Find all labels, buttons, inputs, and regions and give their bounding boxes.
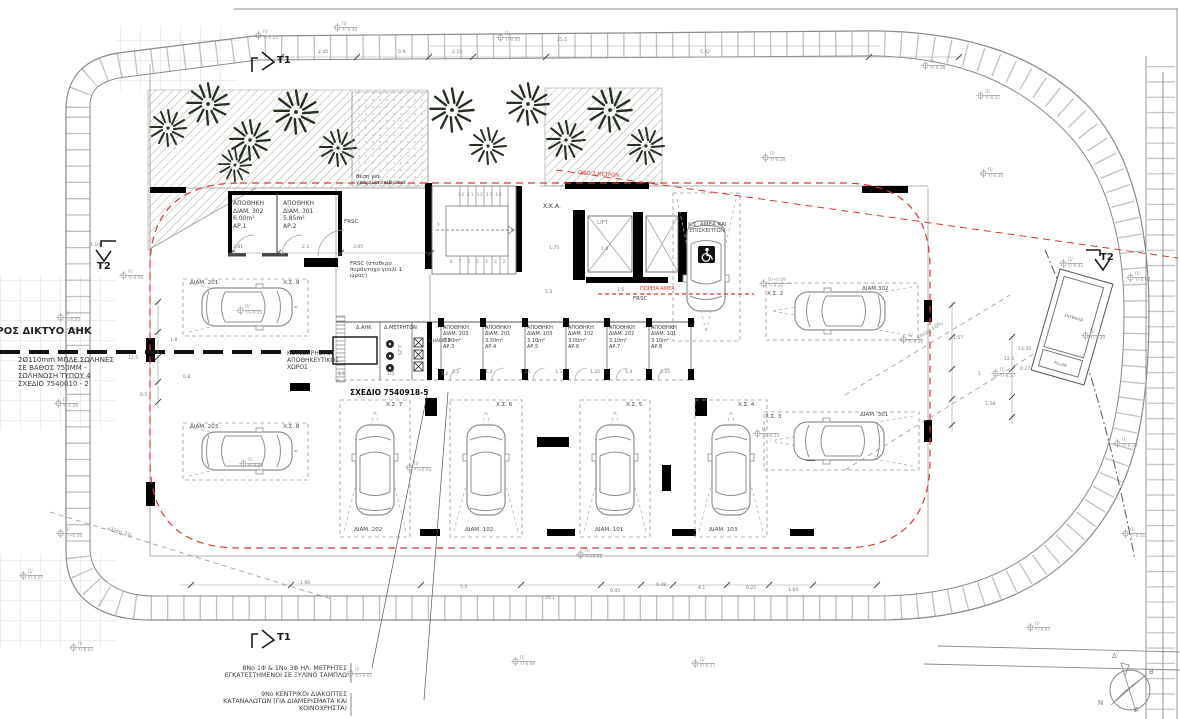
storage-unit-label: ΑΠΟΘΗΚΗ ΔΙΑΜ. 201 3.30m² ΑΡ.4 bbox=[485, 325, 525, 350]
survey-marker: Π/ Υ/-0.04 bbox=[128, 270, 143, 282]
note-line: ΧΩΡΟΣ bbox=[287, 364, 339, 371]
survey-marker: Π/ Υ/-0.63 bbox=[1135, 272, 1150, 284]
label-amea-bay: Χ.Σ. ΑΜΕΑ ΚΑΙ ΕΠΙΣΚΕΠΤΩΝ bbox=[676, 222, 738, 234]
frsc-label-1: FRSC bbox=[344, 219, 358, 226]
marker-level: Υ/-0.60 bbox=[520, 662, 535, 667]
survey-marker: Π/ Υ/-0.05 bbox=[65, 312, 80, 324]
marker-level: Υ/-0.51 bbox=[1130, 534, 1145, 539]
parking-label: ΔΙΑΜ. 203 bbox=[190, 424, 218, 430]
storage-number: ΑΡ.1 bbox=[233, 223, 279, 231]
marker-level: Υ/-0.17 bbox=[700, 664, 715, 669]
survey-marker: Π/ Υ/-0.42 bbox=[1068, 258, 1083, 270]
marker-level: Υ/-0.26 bbox=[908, 340, 923, 345]
dimension-label: 1.58 bbox=[985, 402, 995, 407]
compass-letter-west: Δ bbox=[1112, 652, 1117, 660]
dimension-label: 2.15 bbox=[452, 50, 462, 55]
compass-letter-east: Α bbox=[1134, 706, 1139, 714]
dimension-label: 3.05 bbox=[353, 245, 363, 250]
stair-number-mid: 9 bbox=[437, 223, 440, 228]
storage-area: 5.85m² bbox=[283, 215, 329, 223]
dimension-label: 0.45 bbox=[610, 589, 620, 594]
survey-marker: Π/ Υ/-0.67 bbox=[1035, 622, 1050, 634]
storage-number: ΑΡ.6 bbox=[568, 344, 608, 350]
parking-label: ΔΙΑΜ. 101 bbox=[595, 527, 623, 533]
dimension-label: 1.2 bbox=[441, 372, 448, 377]
marker-level: Υ/-0.07 bbox=[28, 576, 43, 581]
storage-number: ΑΡ.5 bbox=[527, 344, 567, 350]
marker-level: Υ/+0.05 bbox=[245, 311, 262, 316]
survey-marker: Π/ Υ/+0.02 bbox=[414, 462, 431, 474]
dimension-label: 0.27 bbox=[1020, 367, 1030, 372]
survey-marker: Π/ Υ/-0.41 bbox=[263, 30, 278, 42]
dimension-label: 1.64 bbox=[788, 588, 798, 593]
survey-marker: Π/ Υ/+0.00 bbox=[65, 528, 82, 540]
parking-label: ΔΙΑΜ.302 bbox=[862, 286, 889, 292]
parking-label: Χ.Σ. 3 bbox=[765, 414, 781, 420]
survey-marker: Π/ Υ/-0.44 bbox=[342, 22, 357, 34]
note-line: ΑΠΟΘΗΚΕΥΤΙΚΟΣ bbox=[287, 357, 339, 364]
label-room-dmetriton: Δ.ΜΕΤΡΗΤΩΝ bbox=[384, 325, 417, 331]
note-line: 8Νο 1Φ & 1Νο 3Φ ΗΛ. ΜΕΤΡΗΤΕΣ bbox=[200, 665, 347, 672]
survey-marker: Π/ Υ/-0.39 bbox=[1090, 330, 1105, 342]
survey-marker: Π/ Υ/-0.51 bbox=[1130, 528, 1145, 540]
note-line: ΚΟΙΝΟΧΡΗΣΤΑ) bbox=[200, 705, 347, 712]
survey-marker: Π/ Υ/-0.51 bbox=[985, 90, 1000, 102]
marker-level: Υ/-0.22 bbox=[768, 284, 792, 289]
dimension-label: 1 bbox=[978, 372, 981, 377]
marker-level: Υ/-0.51 bbox=[985, 96, 1000, 101]
survey-marker: Π/ Υ/-0.29 bbox=[1122, 438, 1137, 450]
label-room-dahk: Δ.ΑΗΚ bbox=[356, 325, 371, 331]
dimension-label: 1.2 bbox=[452, 370, 459, 375]
dimension-label: 2.1 bbox=[302, 245, 309, 250]
storage-number: ΑΡ.4 bbox=[485, 344, 525, 350]
parking-label: ΔΙΑΜ. 201 bbox=[190, 280, 218, 286]
dimension-label: 1.3 bbox=[485, 370, 492, 375]
dimension-label: 0.9 bbox=[398, 50, 405, 55]
storage-number: ΑΡ.7 bbox=[609, 344, 649, 350]
storage-unit-label: ΑΠΟΘΗΚΗ ΔΙΑΜ. 203 3.30m² ΑΡ.3 bbox=[443, 325, 483, 350]
parking-label: Χ.Σ. 2 bbox=[767, 291, 783, 297]
label-lift: LIFT bbox=[597, 220, 608, 227]
survey-marker: Π/ Υ/-0.27 bbox=[1000, 368, 1015, 380]
plan-linework bbox=[0, 0, 1180, 719]
dimension-label: 5.42 bbox=[700, 50, 710, 55]
dimension-label: 1.3 bbox=[625, 370, 632, 375]
marker-level: Υ/-0.28 bbox=[770, 158, 785, 163]
dimension-label: 12.5 bbox=[1004, 357, 1014, 362]
marker-level: Υ/-0.09 bbox=[248, 464, 263, 469]
dimension-label: 25.1 bbox=[545, 596, 555, 601]
note-frsc-glass: FRSC (σταθερό πυράντοχο γυαλί 1 ώρας) bbox=[350, 261, 410, 279]
label-xka: Χ.Κ.Α. bbox=[543, 203, 561, 210]
parking-label: ΔΙΑΜ. 301 bbox=[860, 412, 888, 418]
dimension-label: 1.5 bbox=[387, 372, 394, 377]
dimension-label: 1.25 bbox=[660, 370, 670, 375]
storage-unit-label: ΑΠΟΘΗΚΗ ΔΙΑΜ. 301 5.85m² ΑΡ.2 bbox=[283, 200, 329, 230]
storage-name: ΑΠΟΘΗΚΗ bbox=[233, 200, 279, 208]
survey-marker: Π/ Υ/-0.26 bbox=[988, 168, 1003, 180]
marker-level: Υ/+0.02 bbox=[414, 468, 431, 473]
survey-marker: Π/ Υ/+0.61 bbox=[355, 668, 372, 680]
compass-icon bbox=[1110, 663, 1150, 712]
dimension-label: 0.48 bbox=[656, 583, 666, 588]
section-label-t2-right: T2 bbox=[1100, 252, 1114, 263]
stair-numbers-lower: 8 7 6 5 4 3 2 bbox=[450, 260, 508, 265]
parking-label: ΔΙΑΜ. 103 bbox=[709, 527, 737, 533]
marker-level: Υ/-0.45 bbox=[505, 38, 520, 43]
storage-apartment: ΔΙΑΜ. 302 bbox=[233, 208, 279, 216]
note-line: ΣΧΕΔΙΟ 7540010 - 2 bbox=[18, 380, 114, 388]
marker-level: Υ/-0.44 bbox=[342, 28, 357, 33]
dimension-label: 5.5 bbox=[460, 585, 467, 590]
dimension-label: 1.5 bbox=[617, 288, 624, 293]
section-label-t1-bottom: T1 bbox=[277, 632, 291, 643]
columns bbox=[146, 186, 932, 536]
parking-label: Χ.Σ. 4 bbox=[738, 402, 754, 408]
note-main-switches: 9Νο ΚΕΝΤΡΙΚΟΙ ΔΙΑΚΟΠΤΕΣ ΚΑΤΑΝΑΛΩΤΩΝ (ΓΙΑ… bbox=[200, 691, 347, 712]
survey-marker: Π/ Υ/+0.09 bbox=[585, 549, 602, 561]
survey-marker: Π/ Υ/-0.04 bbox=[63, 398, 78, 410]
wheelchair-icon bbox=[698, 246, 715, 263]
marker-level: Υ/-0.67 bbox=[1035, 628, 1050, 633]
survey-marker: Π/ Υ/-0.07 bbox=[28, 570, 43, 582]
survey-marker: Π/ Υ/-0.09 bbox=[248, 458, 263, 470]
parking-label: Χ.Σ. 6 bbox=[496, 402, 512, 408]
compass-letter-north: Β bbox=[1149, 668, 1154, 676]
dimension-label: 2.81 bbox=[233, 245, 243, 250]
note-electric-meters: 8Νο 1Φ & 1Νο 3Φ ΗΛ. ΜΕΤΡΗΤΕΣ ΕΓΚΑΤΕΣΤΗΜΕ… bbox=[200, 665, 347, 679]
note-mailboxes: θέση για γραμματοκιβώτια bbox=[356, 174, 406, 186]
parking-label: ΔΙΑΜ. 102 bbox=[465, 527, 493, 533]
dimension-label: 1.1 bbox=[338, 372, 345, 377]
survey-marker: Π/ Υ/-0.28 bbox=[770, 152, 785, 164]
survey-marker: Π/ Υ/-0.38 bbox=[930, 60, 945, 72]
note-ahk-network: ΠΡΟΣ ΔΙΚΤΥΟ ΑΗΚ bbox=[0, 326, 92, 338]
note-line: ΣΩΛΗΝΩΣΗ ΤΥΠΟΥ 4 bbox=[18, 372, 114, 380]
storage-unit-label: ΑΠΟΘΗΚΗ ΔΙΑΜ. 103 3.10m² ΑΡ.5 bbox=[527, 325, 567, 350]
parking-label: Χ.Σ. 7 bbox=[386, 402, 402, 408]
dimension-label: 9.1 bbox=[698, 586, 705, 591]
storage-number: ΑΡ.3 bbox=[443, 344, 483, 350]
storage-number: ΑΡ.2 bbox=[283, 223, 329, 231]
marker-level: Υ/+0.13 bbox=[762, 434, 779, 439]
dimension-label: 2.45 bbox=[318, 50, 328, 55]
marker-level: Υ/-0.39 bbox=[1090, 336, 1105, 341]
marker-level: Υ/-0.04 bbox=[63, 404, 78, 409]
dimension-label: 2.25 bbox=[396, 345, 401, 355]
storage-unit-label: ΑΠΟΘΗΚΗ ΔΙΑΜ. 101 3.10m² ΑΡ.8 bbox=[651, 325, 691, 350]
survey-marker: Π/ Υ/+0.05 bbox=[245, 305, 262, 317]
marker-level: Υ/-0.05 bbox=[65, 318, 80, 323]
marker-level: Υ/-0.63 bbox=[1135, 278, 1150, 283]
storage-unit-label: ΑΠΟΘΗΚΗ ΔΙΑΜ. 202 3.10m² ΑΡ.7 bbox=[609, 325, 649, 350]
parking-label: Χ.Σ. 9 bbox=[283, 280, 299, 286]
dimension-label: 1.57 bbox=[953, 336, 963, 341]
marker-level: Υ/-0.29 bbox=[1122, 444, 1137, 449]
utility-lines bbox=[0, 250, 1135, 600]
parking-label: ΔΙΑΜ. 202 bbox=[354, 527, 382, 533]
note-line: ΣΕ ΒΑΘΟΣ 750ΜΜ - bbox=[18, 364, 114, 372]
marker-level: Υ/+0.09 bbox=[585, 555, 602, 560]
dimension-label: 1.25 bbox=[520, 370, 530, 375]
parking-label: Χ.Σ. 5 bbox=[626, 402, 642, 408]
storage-apartment: ΔΙΑΜ. 301 bbox=[283, 208, 329, 216]
label-poreia-amea: ΠΟΡΕΙΑ ΑΜΕΑ bbox=[640, 286, 675, 292]
note-line: 2Ø110mm ΜΠΛΕ ΣΩΛΗΝΕΣ bbox=[18, 356, 114, 364]
dimension-label: 1.10 bbox=[90, 243, 100, 248]
dimension-label: 1.3 bbox=[555, 370, 562, 375]
label-koinoxristos: ΚΟΙΝΟΧΡΗΣΤΟΣ ΑΠΟΘΗΚΕΥΤΙΚΟΣ ΧΩΡΟΣ bbox=[287, 350, 339, 371]
frsc-label-2: FRSC bbox=[633, 296, 647, 303]
marker-level: Υ/-0.26 bbox=[988, 174, 1003, 179]
stair-numbers-upper: 10 11 12 13 14 bbox=[458, 193, 503, 198]
survey-marker: Π/ Υ/-0.60 bbox=[520, 656, 535, 668]
floor-plan-canvas: ΠΡΟΣ ΔΙΚΤΥΟ ΑΗΚ 2Ø110mm ΜΠΛΕ ΣΩΛΗΝΕΣ ΣΕ … bbox=[0, 0, 1180, 719]
dimension-label: 13.35 bbox=[1018, 347, 1031, 352]
marker-level: Υ/-0.27 bbox=[1000, 374, 1015, 379]
dimension-label: 1.06 bbox=[300, 581, 310, 586]
dimension-label: 1.3 bbox=[545, 290, 552, 295]
dimension-label: 0.5 bbox=[140, 393, 147, 398]
dimension-label: 1.25 bbox=[590, 370, 600, 375]
marker-level: Υ/-0.02 bbox=[78, 648, 93, 653]
note-line: γραμματοκιβώτια bbox=[356, 180, 406, 186]
marker-level: Υ/+0.00 bbox=[65, 534, 82, 539]
note-line: 9Νο ΚΕΝΤΡΙΚΟΙ ΔΙΑΚΟΠΤΕΣ bbox=[200, 691, 347, 698]
survey-marker: Π/ Υ/-0.02 bbox=[78, 642, 93, 654]
marker-level: Υ/-0.38 bbox=[930, 66, 945, 71]
dimension-label: 0.8 bbox=[183, 375, 190, 380]
marker-level: Υ/-0.41 bbox=[263, 36, 278, 41]
compass-letter-south: Ν bbox=[1098, 699, 1103, 707]
marker-level: Υ/-0.04 bbox=[128, 276, 143, 281]
storage-number: ΑΡ.8 bbox=[651, 344, 691, 350]
dimension-label: 12.5 bbox=[128, 356, 138, 361]
section-label-t1-top: T1 bbox=[277, 55, 291, 66]
note-line: ΕΓΚΑΤΕΣΤΗΜΕΝΟΙ ΣΕ ΞΥΛΙΝΟ ΤΑΜΠΛΩ bbox=[200, 672, 347, 679]
note-blue-pipes: 2Ø110mm ΜΠΛΕ ΣΩΛΗΝΕΣ ΣΕ ΒΑΘΟΣ 750ΜΜ - ΣΩ… bbox=[18, 356, 114, 388]
note-line: ΚΟΙΝΟΧΡΗΣΤΟΣ bbox=[287, 350, 339, 357]
survey-marker: Π/ Υ/-0.26 bbox=[908, 334, 923, 346]
note-line: ΕΠΙΣΚΕΠΤΩΝ bbox=[676, 228, 738, 234]
note-line: ΚΑΤΑΝΑΛΩΤΩΝ (ΓΙΑ ΔΙΑΜΕΡΙΣΜΑΤΑ ΚΑΙ bbox=[200, 698, 347, 705]
marker-level: Υ/-0.42 bbox=[1068, 264, 1083, 269]
storage-area: 6.00m² bbox=[233, 215, 279, 223]
survey-marker: Π/ Υ/-0.17 bbox=[700, 658, 715, 670]
storage-name: ΑΠΟΘΗΚΗ bbox=[283, 200, 329, 208]
storage-unit-label: ΑΠΟΘΗΚΗ ΔΙΑΜ. 302 6.00m² ΑΡ.1 bbox=[233, 200, 279, 230]
label-sxedio: ΣΧΕΔΙΟ 7540918-5 bbox=[350, 388, 428, 397]
parking-label: Χ.Σ. 8 bbox=[283, 424, 299, 430]
dimension-label: 0.25 bbox=[746, 586, 756, 591]
survey-marker: Π/+0.09 Υ/-0.22 bbox=[768, 278, 792, 290]
dimension-label: 1.8 bbox=[170, 338, 177, 343]
marker-level: Υ/+0.61 bbox=[355, 674, 372, 679]
survey-marker: Π/ Υ/-0.45 bbox=[505, 32, 520, 44]
section-label-t2-left: T2 bbox=[97, 261, 111, 272]
dimension-label: 1.8 bbox=[601, 247, 608, 252]
dimension-label: 1.75 bbox=[549, 246, 559, 251]
storage-unit-label: ΑΠΟΘΗΚΗ ΔΙΑΜ. 102 3.00m² ΑΡ.6 bbox=[568, 325, 608, 350]
survey-marker: Π/ Υ/+0.13 bbox=[762, 428, 779, 440]
dimension-label: 25.1 bbox=[557, 38, 567, 43]
